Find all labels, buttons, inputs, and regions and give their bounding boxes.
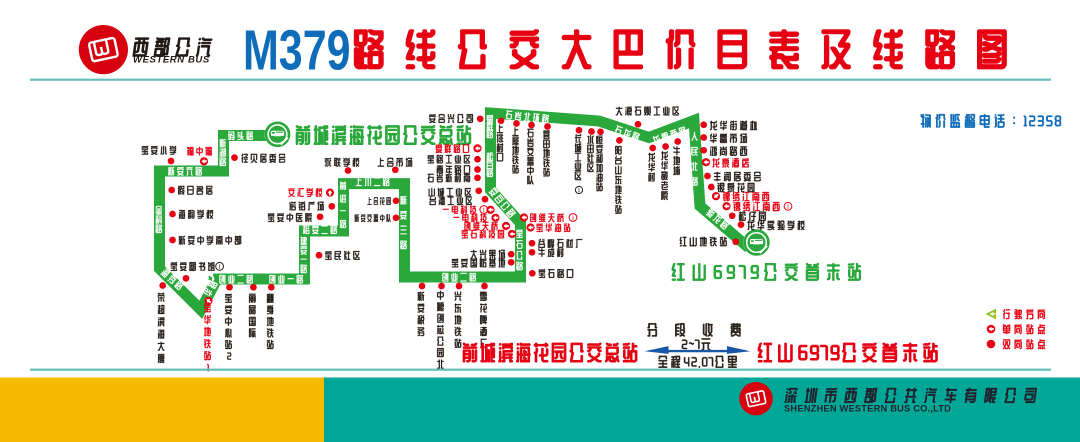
svg-text:SHENZHEN WESTERN BUS CO.,LTD: SHENZHEN WESTERN BUS CO.,LTD xyxy=(784,404,951,414)
svg-text:M379: M379 xyxy=(243,19,351,82)
svg-text:WESTERN BUS: WESTERN BUS xyxy=(133,55,210,66)
